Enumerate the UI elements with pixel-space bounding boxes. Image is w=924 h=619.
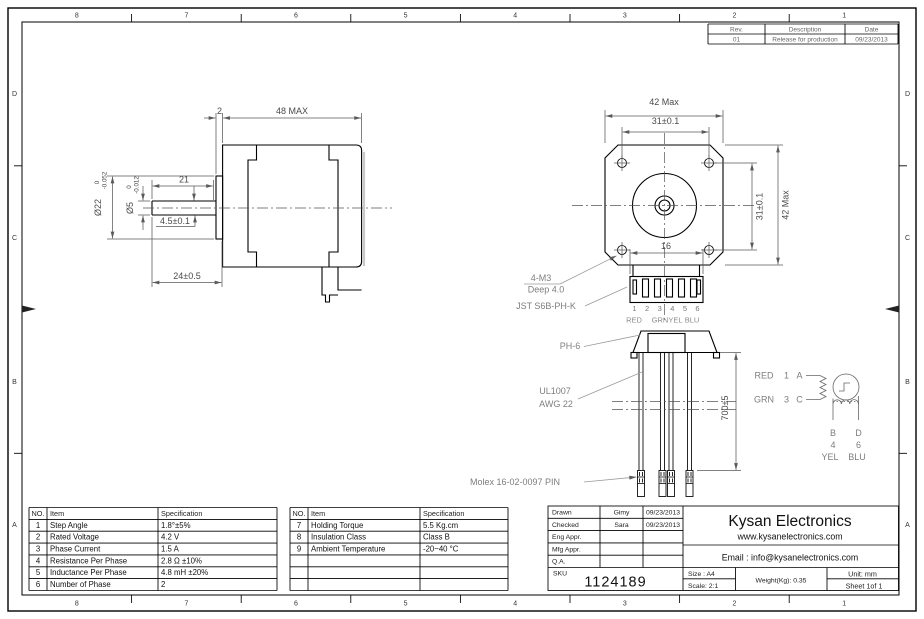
dim-shaft-diameter: Ø5 0 -0.012 bbox=[125, 176, 141, 214]
ph6-housing bbox=[631, 331, 720, 358]
row-spec: 5.5 Kg.cm bbox=[423, 521, 458, 530]
unit-label: Unit: mm bbox=[848, 570, 877, 579]
dim-holes-v-31: 31±0.1 bbox=[755, 193, 765, 220]
row-spec: 1.8°±5% bbox=[161, 521, 191, 530]
wire-callout: UL1007 AWG 22 bbox=[539, 372, 642, 409]
pin-6: 6 bbox=[695, 304, 699, 313]
note-jst: JST S6B-PH-K bbox=[516, 301, 576, 311]
row-no: 6 bbox=[36, 580, 40, 589]
zone-top-5: 5 bbox=[404, 13, 408, 20]
zone-top-6: 6 bbox=[294, 13, 298, 20]
col-spec-header: Specification bbox=[161, 509, 202, 518]
rev-date: 09/23/2013 bbox=[855, 37, 888, 44]
qa-label: Q.A. bbox=[552, 559, 566, 566]
sch-d: D bbox=[855, 428, 862, 438]
checked-name: Sara bbox=[614, 522, 629, 529]
dim-shaft-24: 24±0.5 bbox=[173, 271, 200, 281]
note-4m3: 4-M3 bbox=[531, 273, 552, 283]
sku-label: SKU bbox=[553, 571, 567, 578]
zone-top-2: 2 bbox=[732, 13, 736, 20]
row-spec: Class B bbox=[423, 533, 450, 542]
sch-b: B bbox=[830, 428, 836, 438]
crimp-pins bbox=[638, 471, 694, 497]
row-spec: 4.2 V bbox=[161, 533, 180, 542]
dim-height-42: 42 Max bbox=[781, 190, 791, 220]
zone-right-d: D bbox=[905, 91, 910, 98]
size-label: Size : A4 bbox=[688, 571, 715, 578]
sch-a: A bbox=[796, 371, 802, 381]
note-ul1007: UL1007 bbox=[539, 386, 571, 396]
row-item: Resistance Per Phase bbox=[50, 556, 127, 565]
row-spec: 4.8 mH ±20% bbox=[161, 568, 208, 577]
date-header: Date bbox=[865, 27, 879, 34]
drawn-label: Drawn bbox=[552, 510, 572, 517]
zone-bottom-1: 1 bbox=[842, 601, 846, 608]
row-no: 5 bbox=[36, 568, 41, 577]
spec-table-left: NO. Item Specification 1 Step Angle 1.8°… bbox=[29, 508, 277, 591]
row-no: 1 bbox=[36, 521, 40, 530]
col-no-header: NO. bbox=[32, 509, 45, 518]
row-spec: 2.8 Ω ±10% bbox=[161, 556, 202, 565]
row-no: 8 bbox=[297, 533, 301, 542]
motor-front-view: 42 Max 31±0.1 31±0.1 42 Max 16 4-M3 Deep… bbox=[516, 97, 790, 325]
col-item-header: Item bbox=[50, 509, 64, 518]
description-header: Description bbox=[789, 27, 822, 34]
motor-symbol bbox=[833, 374, 859, 400]
wiring-schematic: RED 1 A GRN 3 C B D 4 6 YEL BLU bbox=[754, 371, 866, 463]
row-item: Step Angle bbox=[50, 521, 88, 530]
pin-1: 1 bbox=[632, 304, 636, 313]
hole-callout: 4-M3 Deep 4.0 bbox=[524, 256, 617, 295]
row-item: Phase Current bbox=[50, 545, 101, 554]
dim-width-42: 42 Max bbox=[649, 97, 679, 107]
front-connector bbox=[630, 265, 703, 303]
drawn-date: 09/23/2013 bbox=[646, 510, 680, 517]
side-dimensions: 2 48 MAX 21 4.5±0.1 24±0.5 Ø22 0 -0.052 bbox=[93, 106, 362, 287]
dim-holes-h-31: 31±0.1 bbox=[652, 116, 679, 126]
company-name: Kysan Electronics bbox=[728, 513, 851, 530]
zone-bottom-2: 2 bbox=[732, 601, 736, 608]
row-no: 9 bbox=[297, 545, 301, 554]
note-ph6: PH-6 bbox=[560, 341, 581, 351]
zone-left-d: D bbox=[12, 91, 17, 98]
row-item: Insulation Class bbox=[311, 533, 366, 542]
sch-4: 4 bbox=[830, 440, 835, 450]
zone-bottom-6: 6 bbox=[294, 601, 298, 608]
zone-right-c: C bbox=[905, 235, 910, 242]
phase-a-coil bbox=[806, 376, 826, 400]
zone-top-4: 4 bbox=[513, 13, 517, 20]
row-item: Holding Torque bbox=[311, 521, 363, 530]
row-spec: 1.5 A bbox=[161, 545, 180, 554]
front-dimensions: 42 Max 31±0.1 31±0.1 42 Max 16 bbox=[605, 97, 791, 274]
sch-6: 6 bbox=[856, 440, 861, 450]
mfg-appr-label: Mfg Appr. bbox=[552, 546, 581, 553]
zone-top-3: 3 bbox=[623, 13, 627, 20]
shaft-dia-value: Ø5 bbox=[125, 202, 135, 214]
rev-header: Rev. bbox=[730, 27, 743, 34]
length-dimension: 700±5 bbox=[697, 353, 741, 471]
row-no: 3 bbox=[36, 545, 40, 554]
zone-top-7: 7 bbox=[184, 13, 188, 20]
row-item: Number of Phase bbox=[50, 580, 111, 589]
sch-grn: GRN bbox=[754, 395, 774, 405]
shaft-dia-tol-lower: -0.012 bbox=[134, 176, 141, 194]
zone-bottom-8: 8 bbox=[75, 601, 79, 608]
spec-table-right: NO. Item Specification 7 Holding Torque … bbox=[290, 508, 508, 591]
scale-label: Scale: 2:1 bbox=[688, 583, 718, 590]
company-website: www.kysanelectronics.com bbox=[736, 532, 842, 542]
note-deep40: Deep 4.0 bbox=[528, 285, 565, 295]
zone-bottom-3: 3 bbox=[623, 601, 627, 608]
note-awg22: AWG 22 bbox=[539, 399, 573, 409]
row-no: 2 bbox=[36, 533, 40, 542]
sch-blu: BLU bbox=[848, 452, 866, 462]
molex-callout: Molex 16-02-0097 PIN bbox=[470, 477, 637, 487]
row-spec: -20~40 °C bbox=[423, 545, 459, 554]
revision-table: Rev. Description Date 01 Release for pro… bbox=[708, 24, 898, 44]
phase-b-coil bbox=[833, 396, 859, 420]
cable-assembly: 700±5 PH-6 UL1007 AWG 22 Molex 16-02-009… bbox=[470, 331, 741, 497]
company-email: Email : info@kysanelectronics.com bbox=[722, 553, 859, 563]
zone-top-8: 8 bbox=[75, 13, 79, 20]
row-spec: 2 bbox=[161, 580, 165, 589]
pin-2: 2 bbox=[645, 304, 649, 313]
color-red: RED bbox=[626, 316, 642, 325]
center-mark-left bbox=[22, 306, 36, 313]
ph6-callout: PH-6 bbox=[560, 335, 640, 351]
row-item: Inductance Per Phase bbox=[50, 568, 127, 577]
pin-numbers: 1 2 3 4 5 6 bbox=[632, 304, 699, 313]
wires bbox=[639, 353, 692, 471]
eng-appr-label: Eng Appr. bbox=[552, 534, 582, 541]
wire-color-labels: RED GRN YEL BLU bbox=[626, 316, 699, 325]
center-mark-right bbox=[885, 306, 899, 313]
dim-length-700: 700±5 bbox=[720, 396, 730, 421]
boss-dia-value: Ø22 bbox=[93, 199, 103, 216]
sch-c: C bbox=[796, 395, 803, 405]
zone-left-b: B bbox=[12, 379, 17, 386]
zone-top-1: 1 bbox=[842, 13, 846, 20]
zone-right-b: B bbox=[905, 379, 910, 386]
zone-bottom-5: 5 bbox=[404, 601, 408, 608]
motor-side-view: 2 48 MAX 21 4.5±0.1 24±0.5 Ø22 0 -0.052 bbox=[93, 106, 392, 302]
sku-value: 1124189 bbox=[584, 575, 646, 591]
spec-rows-right: 7 Holding Torque 5.5 Kg.cm 8 Insulation … bbox=[297, 521, 459, 554]
rev-value: 01 bbox=[733, 37, 741, 44]
dim-plate-2: 2 bbox=[217, 106, 222, 116]
row-item: Ambient Temperature bbox=[311, 545, 385, 554]
dim-body-48max: 48 MAX bbox=[276, 106, 308, 116]
weight-label: Weight(Kg): 0.35 bbox=[756, 578, 807, 585]
drawing-sheet: 8 7 6 5 4 3 2 1 8 7 6 5 4 3 2 1 D C B A … bbox=[0, 0, 924, 619]
zone-bottom-4: 4 bbox=[513, 601, 517, 608]
checked-date: 09/23/2013 bbox=[646, 522, 680, 529]
sch-red: RED bbox=[754, 371, 774, 381]
sheet-label: Sheet 1of 1 bbox=[846, 582, 883, 591]
col-item-header: Item bbox=[311, 509, 325, 518]
col-no-header: NO. bbox=[293, 509, 306, 518]
shaft-dia-tol-upper: 0 bbox=[126, 185, 133, 189]
wire-break-lines bbox=[612, 402, 736, 410]
front-centerlines bbox=[572, 133, 757, 322]
pin-4: 4 bbox=[670, 304, 674, 313]
zone-left-a: A bbox=[12, 522, 17, 529]
boss-dia-tol-upper: 0 bbox=[94, 180, 101, 184]
drawn-name: Gimy bbox=[614, 510, 630, 517]
col-spec-header: Specification bbox=[423, 509, 464, 518]
zone-left-c: C bbox=[12, 235, 17, 242]
sch-yel: YEL bbox=[821, 452, 838, 462]
sch-3: 3 bbox=[784, 395, 789, 405]
color-grn: GRN bbox=[652, 316, 669, 325]
row-no: 4 bbox=[36, 556, 41, 565]
rev-description: Release for production bbox=[772, 37, 838, 44]
note-molex: Molex 16-02-0097 PIN bbox=[470, 477, 560, 487]
dim-connector-16: 16 bbox=[661, 241, 671, 251]
title-block: Drawn Gimy 09/23/2013 Checked Sara 09/23… bbox=[548, 506, 899, 591]
row-item: Rated Voltage bbox=[50, 533, 99, 542]
color-yel: YEL bbox=[668, 316, 682, 325]
checked-label: Checked bbox=[552, 522, 579, 529]
zone-bottom-7: 7 bbox=[184, 601, 188, 608]
sch-1: 1 bbox=[784, 371, 789, 381]
color-blu: BLU bbox=[685, 316, 700, 325]
dim-flat-depth: 4.5±0.1 bbox=[160, 216, 190, 226]
row-no: 7 bbox=[297, 521, 301, 530]
zone-right-a: A bbox=[905, 522, 910, 529]
pin-3: 3 bbox=[658, 304, 662, 313]
engineering-drawing: 8 7 6 5 4 3 2 1 8 7 6 5 4 3 2 1 D C B A … bbox=[0, 0, 924, 619]
dim-boss-diameter: Ø22 0 -0.052 bbox=[93, 171, 109, 216]
boss-dia-tol-lower: -0.052 bbox=[102, 171, 109, 189]
pin-5: 5 bbox=[683, 304, 687, 313]
